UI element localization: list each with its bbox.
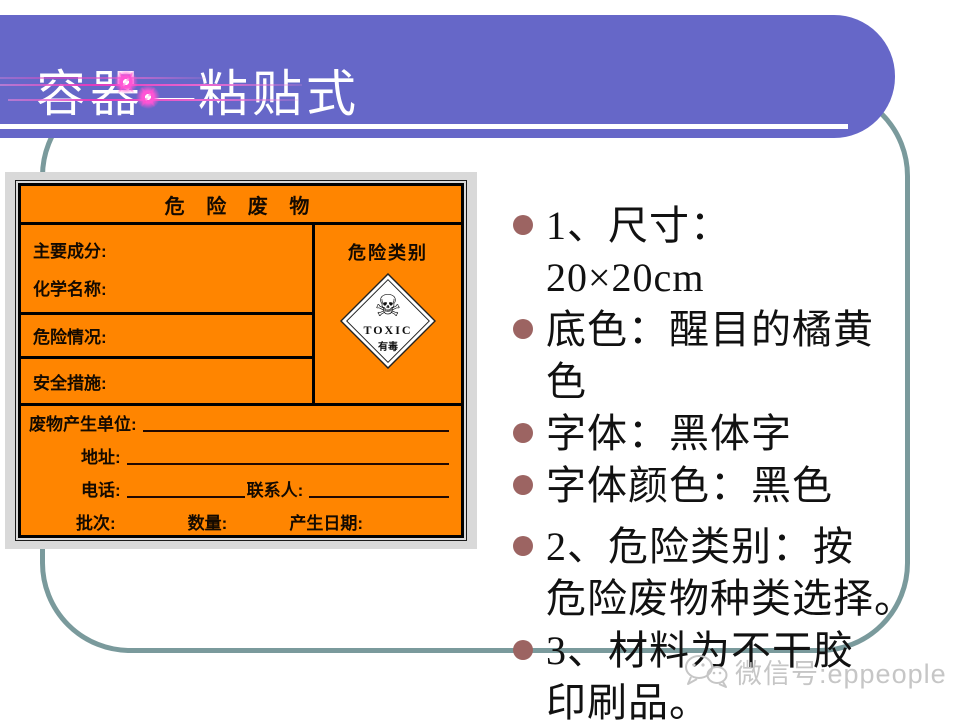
bullet-text: 字体颜色：黑色: [546, 460, 833, 512]
label-field-contact: 联系人:: [247, 476, 304, 501]
toxic-diamond: ☠ TOXIC 有毒: [340, 273, 436, 369]
label-field-waste-producer: 废物产生单位:: [29, 410, 137, 435]
bullet-marker: [513, 215, 533, 235]
wechat-icon: [683, 654, 729, 690]
hazard-label: 危 险 废 物 主要成分: 化学名称: 危险情况: 安全措施: 危险类别: [18, 183, 464, 538]
label-field-batch: 批次:: [76, 509, 116, 534]
sparkle-icon: [136, 85, 160, 109]
bullet-marker: [513, 536, 533, 556]
label-field-quantity: 数量:: [188, 509, 228, 534]
blank-underline: [143, 430, 449, 432]
blank-underline: [127, 463, 449, 465]
bullet-item: 1、尺寸： 20×20cm: [505, 200, 935, 304]
label-field-chemical-name: 化学名称:: [33, 275, 107, 300]
label-title: 危 险 废 物: [21, 186, 461, 225]
bullet-marker: [513, 475, 533, 495]
label-field-hazard-category: 危险类别: [348, 239, 428, 265]
label-field-phone: 电话:: [81, 476, 121, 501]
title-underline: [0, 124, 848, 129]
blank-underline: [127, 496, 245, 498]
bullet-text: 底色：醒目的橘黄 色: [546, 304, 874, 408]
bullet-marker: [513, 423, 533, 443]
label-field-safety-measures: 安全措施:: [33, 369, 107, 394]
bullet-item: 底色：醒目的橘黄 色: [505, 304, 935, 408]
bullet-text: 1、尺寸： 20×20cm: [546, 200, 731, 304]
slide: 容器—粘贴式 危 险 废 物 主要成分: 化学名称: 危险情况: 安全措施:: [0, 0, 960, 720]
toxic-text-zh: 有毒: [378, 338, 398, 353]
bullet-item: 2、危险类别：按 危险废物种类选择。: [505, 521, 935, 625]
label-field-hazard-situation: 危险情况:: [33, 323, 107, 348]
bullet-marker: [513, 319, 533, 339]
sparkle-line: [0, 77, 205, 79]
bullet-text: 字体：黑体字: [546, 408, 792, 460]
watermark-text: 微信号:eppeople: [735, 652, 947, 691]
bullet-item: 字体颜色：黑色: [505, 460, 935, 512]
watermark: 微信号:eppeople: [683, 652, 947, 691]
skull-crossbones-icon: ☠: [375, 292, 402, 322]
label-field-production-date: 产生日期:: [289, 509, 363, 534]
bullet-item: 字体：黑体字: [505, 408, 935, 460]
blank-underline: [309, 496, 449, 498]
toxic-text-en: TOXIC: [363, 323, 412, 338]
label-field-address: 地址:: [81, 443, 121, 468]
bullet-marker: [513, 640, 533, 660]
page-title: 容器—粘贴式: [36, 68, 360, 120]
bullet-text: 2、危险类别：按 危险废物种类选择。: [546, 521, 915, 625]
bullet-list: 1、尺寸： 20×20cm 底色：醒目的橘黄 色 字体：黑体字 字体颜色：黑色 …: [505, 200, 935, 720]
label-field-main-component: 主要成分:: [33, 237, 107, 262]
hazard-label-image: 危 险 废 物 主要成分: 化学名称: 危险情况: 安全措施: 危险类别: [5, 172, 477, 549]
